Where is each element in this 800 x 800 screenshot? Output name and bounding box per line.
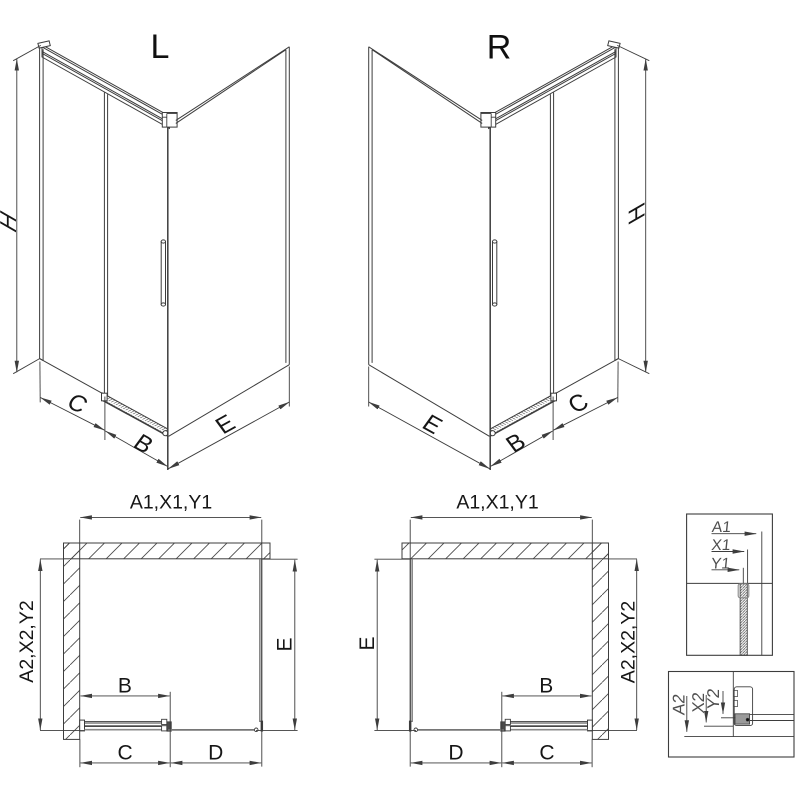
- svg-text:D: D: [448, 742, 463, 765]
- svg-text:E: E: [273, 637, 296, 651]
- svg-text:A1,X1,Y1: A1,X1,Y1: [456, 491, 538, 513]
- svg-text:Y1: Y1: [710, 556, 731, 573]
- svg-text:D: D: [208, 742, 223, 765]
- svg-text:A1,X1,Y1: A1,X1,Y1: [130, 491, 212, 513]
- svg-text:Y2: Y2: [704, 688, 723, 711]
- svg-text:A2,X2,Y2: A2,X2,Y2: [618, 601, 640, 683]
- svg-text:R: R: [487, 29, 512, 67]
- svg-text:A2: A2: [669, 693, 688, 716]
- svg-text:A1: A1: [711, 519, 732, 536]
- svg-text:X1: X1: [711, 537, 732, 554]
- svg-text:E: E: [356, 636, 379, 650]
- svg-text:L: L: [150, 28, 169, 66]
- svg-text:B: B: [539, 675, 553, 698]
- svg-text:C: C: [539, 742, 554, 765]
- svg-text:B: B: [118, 675, 132, 698]
- svg-text:A2,X2,Y2: A2,X2,Y2: [16, 600, 38, 682]
- svg-text:C: C: [118, 742, 133, 765]
